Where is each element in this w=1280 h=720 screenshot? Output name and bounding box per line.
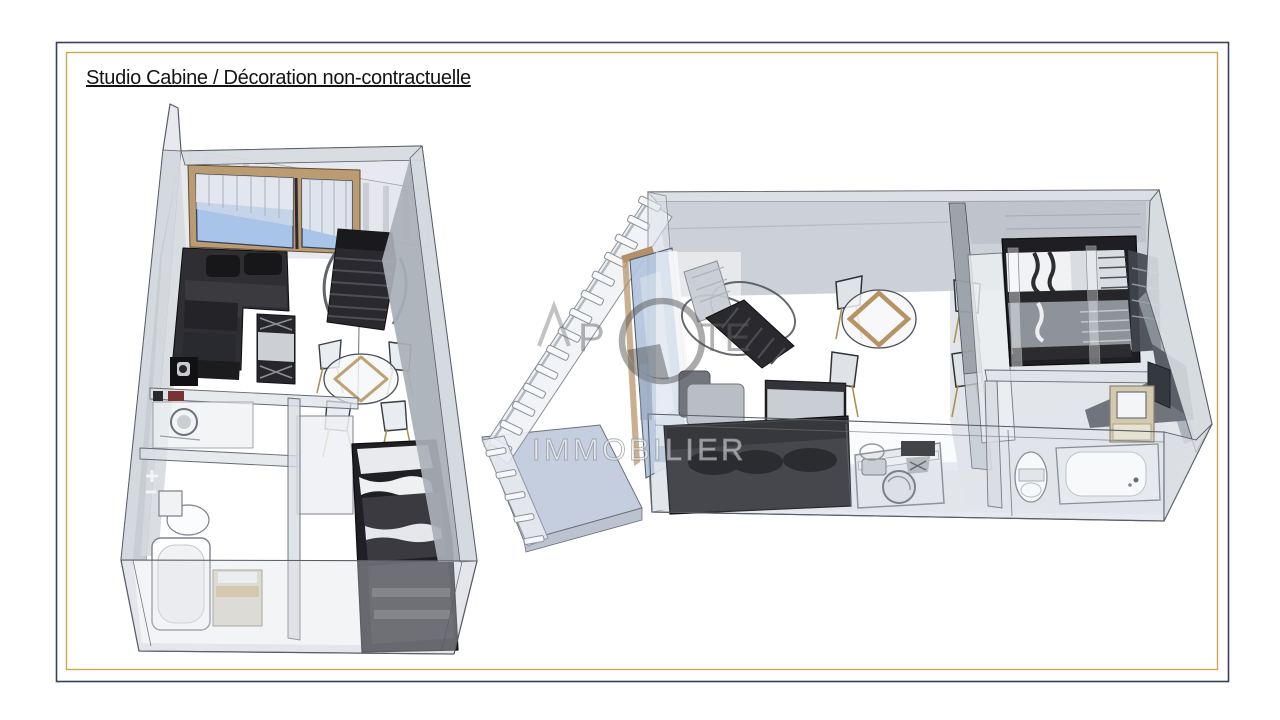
- svg-text:IMMOBILIER: IMMOBILIER: [532, 432, 747, 467]
- svg-text:P: P: [578, 316, 605, 360]
- svg-text:TE: TE: [700, 316, 751, 360]
